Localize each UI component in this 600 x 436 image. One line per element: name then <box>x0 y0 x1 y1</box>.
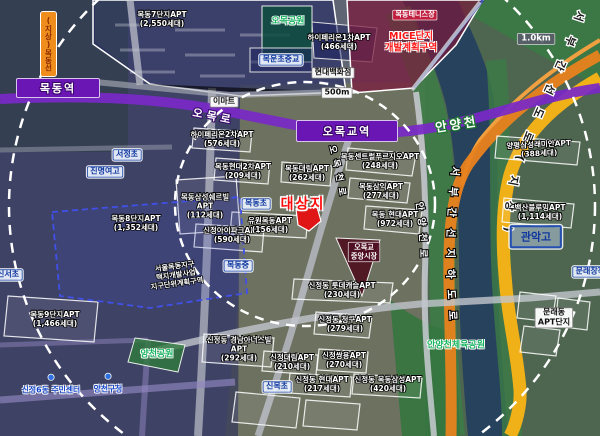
apt-mokdong8: 목동8단지APT(1,352세대) <box>111 215 160 233</box>
omokgyo-station: 오목교역 <box>296 120 398 142</box>
school-shinseo: 신서초 <box>0 269 22 280</box>
apt-chunggu: 신정동 청구APT(279세대) <box>318 316 372 334</box>
target-site-label: 대상지 <box>281 196 326 213</box>
civic-sinjeong6-center: 신정6동 주민센터 <box>22 386 80 396</box>
apt-ssangyong: 신정쌍용APT(270세대) <box>322 352 366 370</box>
scale-1km: 1.0km <box>517 33 555 45</box>
apt-yangpyung: 양평삼성래미안APT(388세대) <box>506 139 572 161</box>
apt-sherville: 목동삼성쉐르빌APT(112세대) <box>181 193 229 220</box>
mokdong-station: 목동역 <box>16 78 100 98</box>
apt-baeksan: 백산블루밍APT(1,114세대) <box>515 204 566 222</box>
poi-emart: 이마트 <box>210 96 238 107</box>
apt-central-prugio: 목동센트럴푸르지오APT(248세대) <box>341 153 420 171</box>
school-mokdong-mid: 목동중 <box>224 260 252 271</box>
poi-hyundai-dept: 현대백화점 <box>311 67 354 78</box>
school-mokun: 목운초중교 <box>259 54 302 65</box>
zone-mice: MICE단지개발계획구역 <box>385 31 437 54</box>
park-yangcheon: 양천공원 <box>140 350 173 361</box>
apt-yuwon: 유원목동APT(156세대) <box>248 217 292 235</box>
apt-hyundai2: 목동현대2차APT(209세대) <box>215 163 271 181</box>
apt-sj-samsung: 신정동 목동삼성APT(420세대) <box>354 376 421 394</box>
road-west-1 <box>0 147 172 150</box>
school-seojeong: 서정초 <box>113 149 141 160</box>
apt-mokdong9: 목동9단지APT(1,466세대) <box>30 311 79 329</box>
school-mokdong-elem: 목동초 <box>242 198 270 209</box>
apt-sj-hyundai: 신정동 현대APT(217세대) <box>295 376 349 394</box>
school-mullae: 문래창작촌 <box>572 266 600 277</box>
park-omok: 오목공원 <box>271 17 304 28</box>
poi-mullae-apt: 문래동APT단지 <box>535 307 574 328</box>
apt-samik: 목동삼익APT(277세대) <box>359 183 403 201</box>
school-gwanak: 관악고 <box>510 225 562 248</box>
apt-kyungnam: 신정동 경남아너스빌APT(292세대) <box>207 336 272 363</box>
poi-market: 오목교중앙시장 <box>348 242 380 262</box>
mokdong-line-tag: (지상)목동선 <box>40 11 57 77</box>
apt-hyperion2: 하이페리온2차APT(576세대) <box>190 131 253 149</box>
school-shinmok: 신목초 <box>263 381 291 392</box>
school-jinmyung: 진명여고 <box>87 166 123 177</box>
apt-hyperion1: 하이페리온1차APT(466세대) <box>307 34 370 52</box>
park-anyangcheon-sports: 안양천체육공원 <box>427 341 485 352</box>
apt-daelim: 목동대림APT(262세대) <box>285 165 329 183</box>
scale-500m: 500m <box>321 87 352 98</box>
poi-tennis: 목동테니스장 <box>392 10 437 20</box>
satellite-annotation-map: 서부간선도로(지상) 서부간선지하도로 안양천로 오목천로 오목로 안양천 (지… <box>0 0 600 436</box>
apt-mokdong7: 목동7단지APT(2,550세대) <box>137 11 186 29</box>
apt-lottecastle: 신정동 롯데캐슬APT(230세대) <box>308 282 375 300</box>
apt-sj-daelim: 신정대림APT(210세대) <box>270 354 314 372</box>
civic-yangcheon-office: 양천구청 <box>94 385 123 395</box>
apt-hyundai972: 목동 현대APT(972세대) <box>372 211 419 229</box>
